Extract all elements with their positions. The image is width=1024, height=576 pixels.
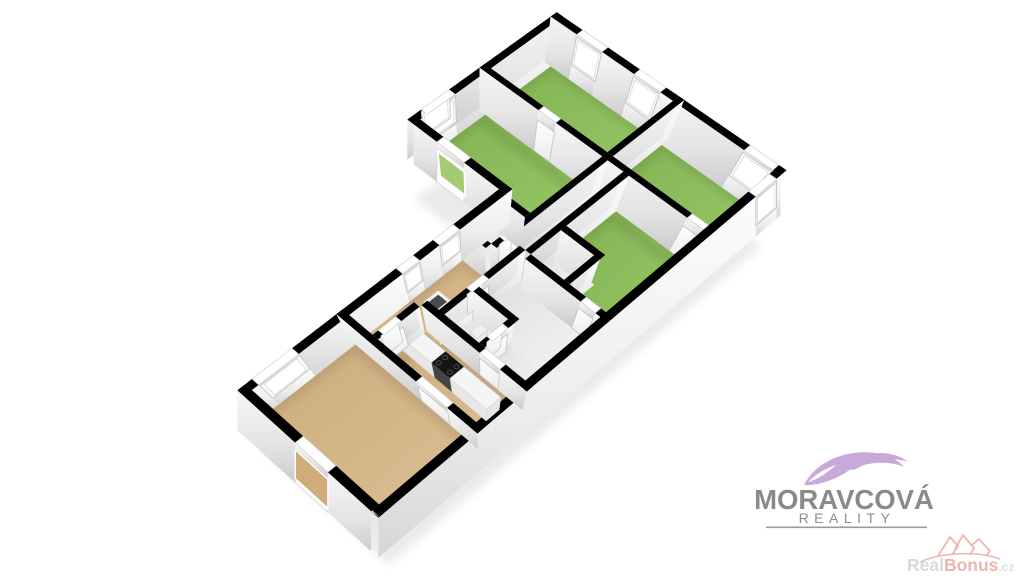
- svg-text:RealBonus.cz: RealBonus.cz: [907, 555, 1014, 575]
- svg-text:REALITY: REALITY: [799, 510, 896, 526]
